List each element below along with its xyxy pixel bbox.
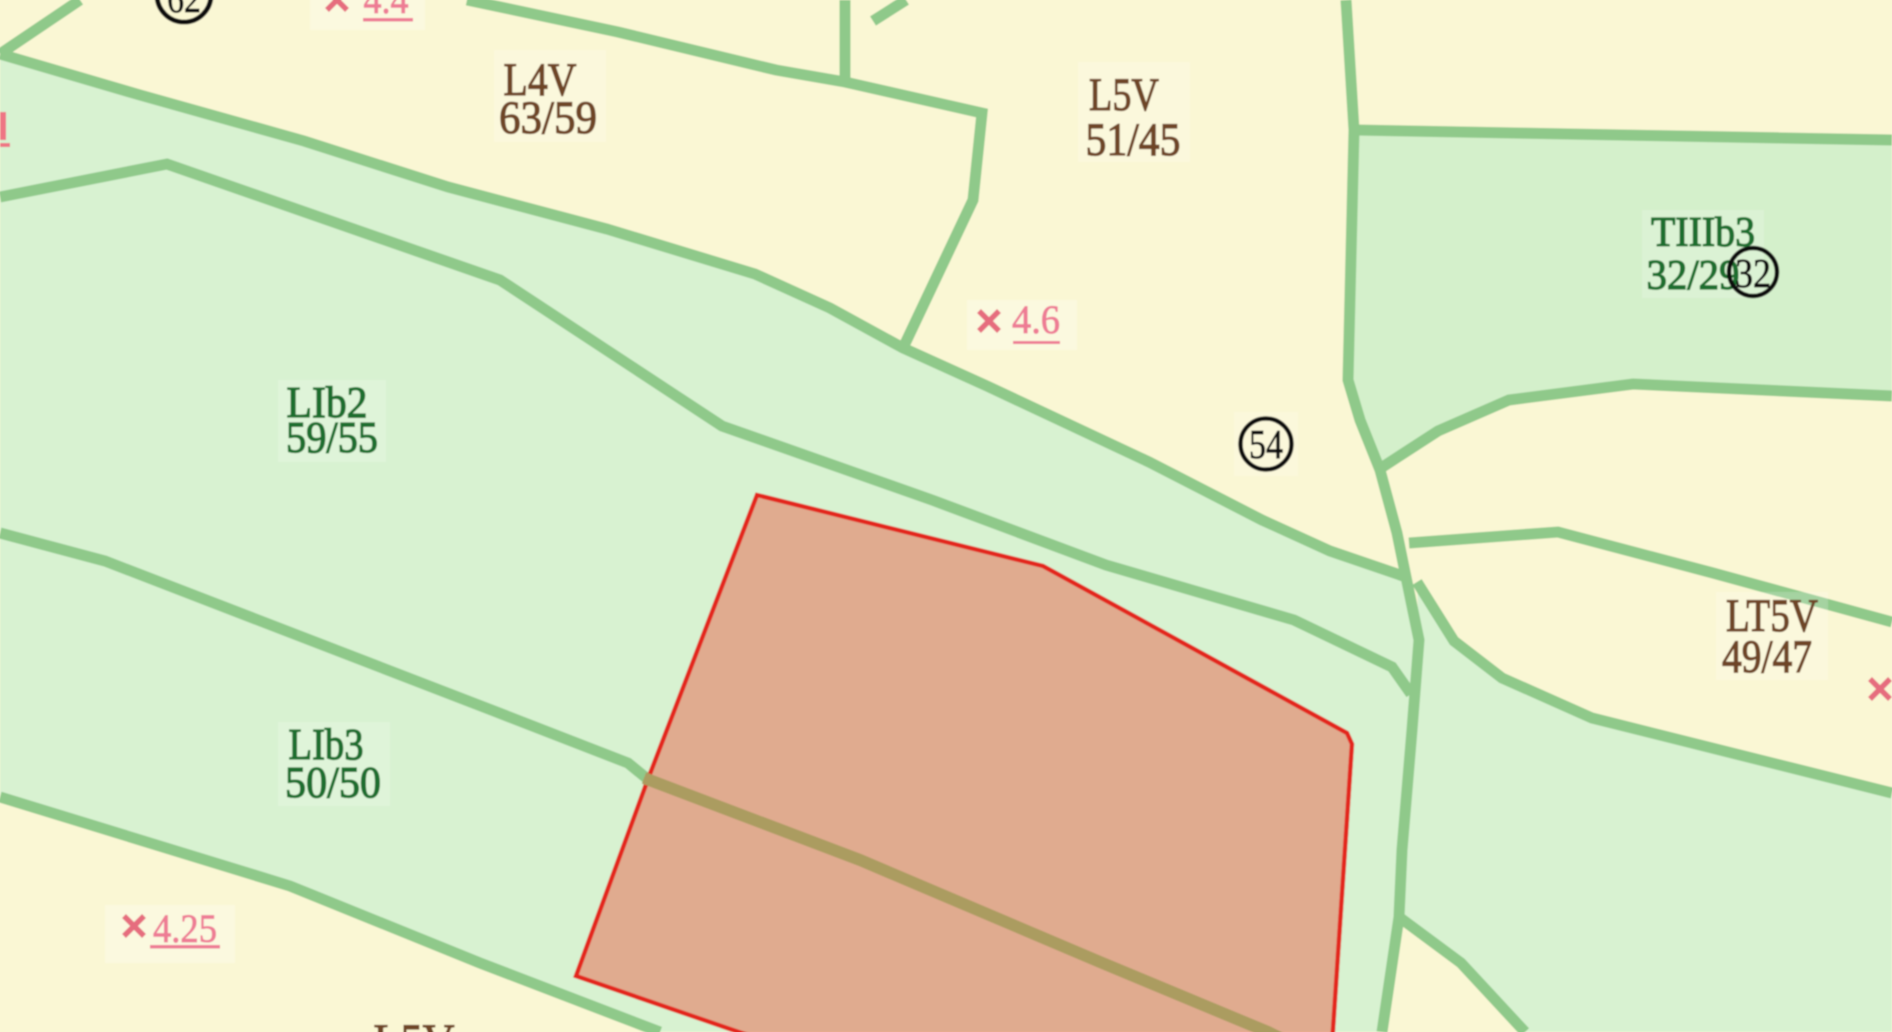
svg-text:L5V: L5V <box>374 1015 455 1032</box>
svg-text:4.25: 4.25 <box>153 906 217 951</box>
svg-text:51/45: 51/45 <box>1086 114 1181 166</box>
svg-text:50/50: 50/50 <box>285 758 381 807</box>
svg-text:32/29: 32/29 <box>1647 253 1740 299</box>
svg-text:32: 32 <box>1735 250 1771 296</box>
svg-text:62: 62 <box>167 0 201 21</box>
svg-text:63/59: 63/59 <box>499 92 597 144</box>
svg-text:4.6: 4.6 <box>1012 297 1060 342</box>
svg-text:54: 54 <box>1249 421 1283 467</box>
svg-text:49/47: 49/47 <box>1722 631 1812 683</box>
svg-text:59/55: 59/55 <box>286 413 378 462</box>
